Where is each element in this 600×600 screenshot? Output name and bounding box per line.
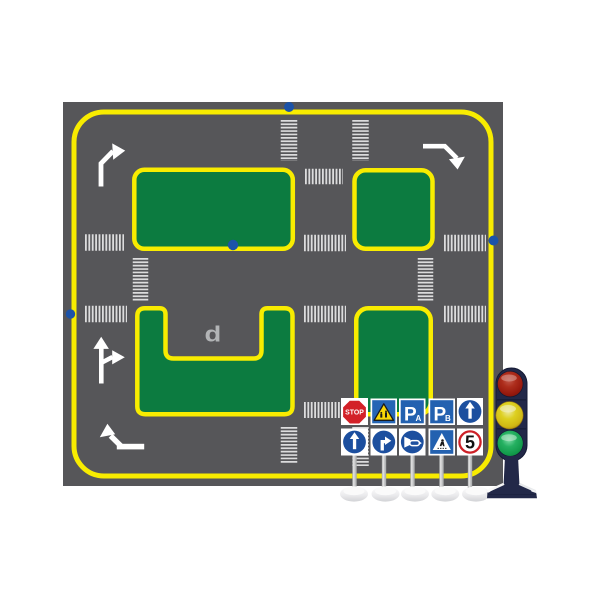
svg-text:B: B — [445, 414, 451, 423]
svg-text:5: 5 — [465, 433, 475, 453]
svg-text:A: A — [416, 414, 422, 423]
svg-text:STOP: STOP — [345, 410, 364, 417]
svg-text:d: d — [205, 322, 222, 347]
